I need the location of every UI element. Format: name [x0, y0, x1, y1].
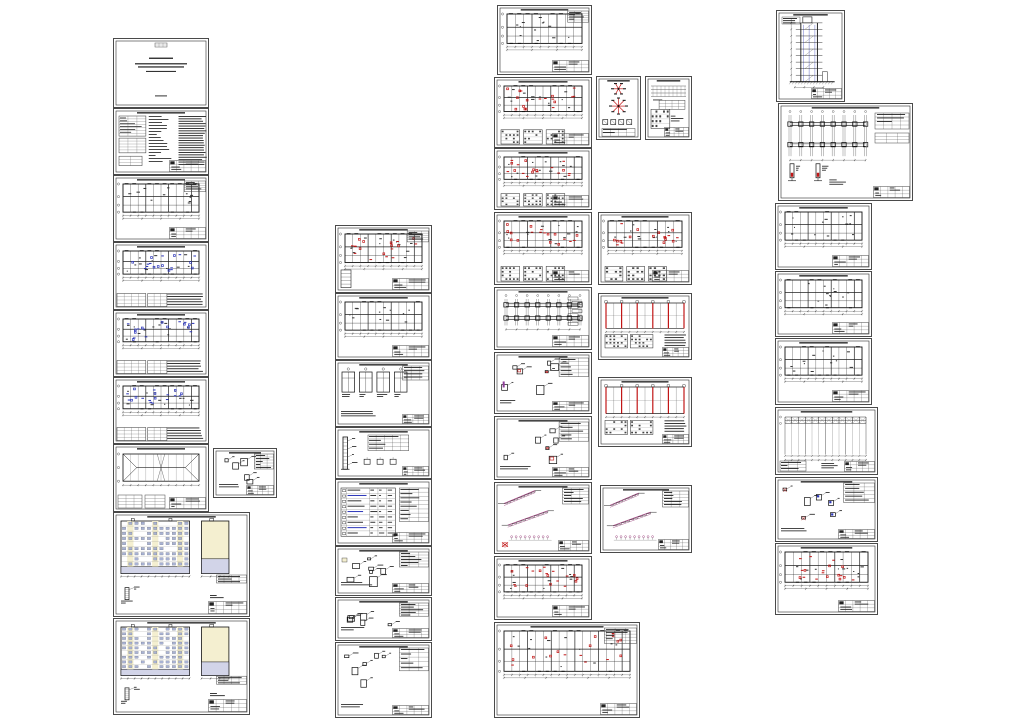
sheet-cover-title-sheet[interactable]: [113, 38, 209, 108]
sheet-node-details-c[interactable]: [335, 642, 432, 718]
sheet-facade-elevation-2[interactable]: [113, 618, 250, 715]
sheet-foundation-layout[interactable]: [494, 287, 592, 350]
sheet-roof-basement-plan[interactable]: [113, 444, 209, 512]
sheet-frame-section-red-1[interactable]: [598, 293, 692, 360]
sheet-building-cross-section[interactable]: [776, 10, 845, 102]
sheet-general-notes-sheet[interactable]: [113, 108, 209, 175]
sheet-element-details-marked[interactable]: [494, 352, 592, 414]
sheet-frame-section-red-2[interactable]: [598, 377, 692, 447]
sheet-marked-plan-bottom-wide[interactable]: [494, 622, 640, 718]
sheet-stair-flight-details-2[interactable]: [600, 485, 692, 553]
sheet-slab-layout-plan-2[interactable]: [494, 77, 592, 148]
sheet-vertical-detail-sheet[interactable]: [335, 427, 432, 479]
sheet-node-details-a[interactable]: [335, 546, 432, 596]
sheet-element-details-2[interactable]: [494, 416, 592, 480]
sheet-schedule-sheet[interactable]: [335, 479, 432, 546]
sheet-wall-plan-b[interactable]: [775, 271, 872, 337]
sheet-small-detail-sheet[interactable]: [213, 448, 277, 498]
sheet-floor-plan-level-1[interactable]: [113, 175, 209, 242]
sheet-slab-layout-plan-4[interactable]: [494, 212, 592, 285]
sheet-wall-plan-a[interactable]: [775, 203, 872, 270]
sheet-wall-plan-c[interactable]: [775, 338, 872, 405]
sheet-floor-plan-typical-c[interactable]: [113, 377, 209, 444]
sheet-roof-node-symbols[interactable]: [596, 76, 641, 140]
sheet-slab-layout-plan-top[interactable]: [497, 5, 592, 75]
sheet-foundation-plan-wide[interactable]: [778, 103, 913, 201]
sheet-node-details-b[interactable]: [335, 597, 432, 641]
sheet-window-details-sheet[interactable]: [335, 360, 432, 427]
sheet-structural-plan[interactable]: [335, 293, 432, 360]
sheet-marked-plan-lower[interactable]: [494, 556, 592, 620]
sheet-slab-layout-plan-right[interactable]: [598, 212, 692, 285]
sheet-facade-elevation-1[interactable]: [113, 512, 250, 617]
sheet-floor-plan-typical-b[interactable]: [113, 310, 209, 377]
sheet-slab-layout-plan-3[interactable]: [494, 148, 592, 210]
sheet-marked-wall-plan[interactable]: [775, 543, 878, 615]
drawing-canvas: [0, 0, 1024, 724]
sheet-roof-framing-plan[interactable]: [775, 407, 878, 475]
sheet-structural-plan-marked[interactable]: [335, 225, 432, 293]
sheet-framing-elevation-sheet[interactable]: [645, 76, 692, 140]
sheet-floor-plan-typical-a[interactable]: [113, 242, 209, 310]
sheet-anchor-details-sheet[interactable]: [775, 477, 878, 542]
sheet-stair-flight-details-1[interactable]: [494, 482, 592, 554]
